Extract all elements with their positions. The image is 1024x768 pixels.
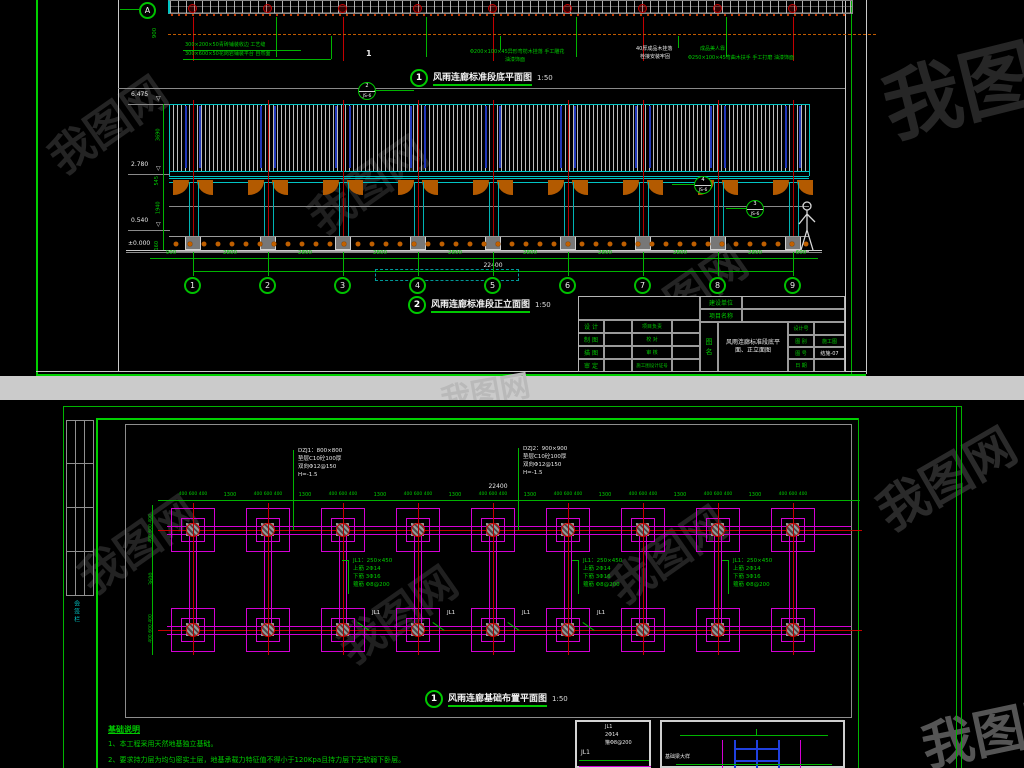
- tb-owner-label: 建设单位: [700, 296, 742, 309]
- tb-label: 制 图: [578, 333, 604, 346]
- grid-bubble: 5: [484, 277, 501, 294]
- tb-label: 审 定: [578, 359, 604, 372]
- cad-preview-screenshot: 我图网 我图网 我图网 我图网: [0, 0, 1024, 768]
- leader-line: [722, 560, 728, 561]
- rebar-line: [734, 748, 780, 750]
- frame-line: [63, 406, 64, 768]
- axis-line: [343, 17, 344, 61]
- grid-line: [268, 252, 269, 276]
- detail-text: JL1: [605, 725, 612, 731]
- leader-line: [572, 560, 578, 561]
- dim-line: [579, 760, 649, 761]
- grid-bubble-a: A: [139, 2, 156, 19]
- dim-label: 400 600 400: [627, 493, 659, 498]
- title-text: 风雨连廊标准段正立面图: [431, 297, 530, 313]
- frame-line: [851, 0, 852, 374]
- grid-bubble: 6: [559, 277, 576, 294]
- beam-note: 上筋 2Φ14: [353, 566, 381, 572]
- detail-text: 2Φ14: [605, 733, 618, 739]
- section-mark: 1: [366, 50, 372, 59]
- grid-line: [568, 252, 569, 276]
- leader-line: [500, 36, 501, 50]
- leader-line: [342, 560, 348, 561]
- tb-value: 结施-07: [814, 347, 845, 359]
- detail-tag: JL1: [581, 750, 590, 757]
- frame-line: [118, 88, 845, 89]
- axis-line: [718, 503, 719, 655]
- dim-label: 400 600 400: [402, 493, 434, 498]
- frame-line: [96, 418, 858, 420]
- beam-section-detail: JL1 2Φ14 箍Φ8@200 JL1: [575, 720, 651, 768]
- detail-text: 箍Φ8@200: [605, 741, 632, 747]
- leader-line: [726, 208, 746, 209]
- dim-line: [163, 104, 164, 250]
- leader-line: [728, 560, 729, 594]
- frame-line: [866, 0, 867, 374]
- level-value: 2.780: [131, 162, 148, 169]
- tb-label: 图 别: [788, 335, 814, 347]
- watermark: 我图网: [914, 675, 1024, 768]
- beam-note: JL1：250×450: [353, 558, 392, 564]
- beam-tag: JL1: [372, 610, 380, 616]
- grid-bubble: 1: [184, 277, 201, 294]
- dim-label: 900: [159, 250, 183, 256]
- column-marker: [488, 4, 497, 13]
- leader-line: [672, 184, 694, 185]
- tb-figname-label: 图 名: [700, 322, 718, 372]
- beam-note: 箍筋 Φ8@200: [733, 582, 770, 588]
- frame-line: [961, 406, 962, 768]
- frame-line: [956, 406, 957, 768]
- dim-label: 400 600 400: [327, 493, 359, 498]
- level-value: 6.475: [131, 92, 148, 99]
- axis-line: [268, 503, 269, 655]
- foundation-title: 1 风雨连廊基础布置平面图 1:50: [425, 690, 568, 708]
- watermark: 我图网: [862, 407, 1024, 544]
- leader-line: [348, 560, 349, 594]
- detail-label: 基础梁大样: [665, 755, 690, 761]
- beam-note: 下筋 3Φ16: [583, 574, 611, 580]
- dim-label: 1300: [443, 493, 467, 499]
- tb-label: 设计号: [788, 322, 814, 335]
- beam-tag: JL1: [447, 610, 455, 616]
- beam-note: 下筋 3Φ16: [353, 574, 381, 580]
- title-scale: 1:50: [537, 74, 553, 82]
- dim-line: [676, 764, 832, 765]
- dim-label: 400 600 400: [177, 493, 209, 498]
- column-marker: [563, 4, 572, 13]
- title-scale: 1:50: [552, 695, 568, 703]
- leader-line: [678, 36, 679, 48]
- tb-label: 设 计: [578, 320, 604, 333]
- grid-bubble: 2: [259, 277, 276, 294]
- leader-underline: [183, 59, 331, 60]
- sign-off-strip: [66, 420, 94, 596]
- plan-note: Φ250×100×45弯曲木扶手 手工打磨 油漆饰面: [688, 56, 794, 62]
- footing-note: DZJ2：900×900: [523, 446, 567, 452]
- beam-note: 箍筋 Φ8@200: [353, 582, 390, 588]
- axis-line: [343, 503, 344, 655]
- grid-line: [120, 9, 139, 10]
- detail-callout: 4JS-6: [694, 176, 712, 194]
- leader-line: [276, 17, 277, 57]
- grid-line: [643, 252, 644, 276]
- leader-line: [518, 448, 519, 530]
- frame-line: [118, 0, 119, 371]
- dim-label: 2800: [668, 250, 692, 256]
- footing-note: H=-1.5: [523, 470, 542, 476]
- notes-heading: 基础说明: [108, 726, 140, 735]
- grid-line: [193, 252, 194, 276]
- grid-bubble: 3: [334, 277, 351, 294]
- dim-label: 1300: [743, 493, 767, 499]
- column-marker: [338, 4, 347, 13]
- axis-line: [793, 503, 794, 655]
- tb-value: [814, 359, 845, 372]
- roof-edge: [809, 104, 810, 176]
- grid-bubble: 9: [784, 277, 801, 294]
- footing-note: 双向Φ12@150: [523, 462, 561, 468]
- tb-label: 校 对: [632, 333, 672, 346]
- watermark: 我图网: [870, 0, 1024, 159]
- dim-label: 2800: [218, 250, 242, 256]
- footing-note: 垫层C10砼100厚: [523, 454, 566, 460]
- grid-line: [343, 252, 344, 276]
- column-marker: [188, 4, 197, 13]
- person-figure: [795, 200, 821, 252]
- leader-line: [578, 560, 579, 594]
- tb-label: 审 核: [632, 346, 672, 359]
- tb-value: 施工图: [814, 335, 845, 347]
- beam-note: 上筋 2Φ14: [733, 566, 761, 572]
- dim-label: 545: [155, 176, 161, 186]
- dim-label: 1300: [368, 493, 392, 499]
- dim-label: 400 600 400: [477, 493, 509, 498]
- grid-bubble: 4: [409, 277, 426, 294]
- footing-note: 双向Φ12@150: [298, 464, 336, 470]
- footing-note: 垫层C10砼100厚: [298, 456, 341, 462]
- plan-note: 栓接安装牢固: [640, 55, 670, 61]
- frame-line: [36, 0, 38, 375]
- detail-callout: 2JS-6: [358, 82, 376, 100]
- plan-note: 成品美人靠: [700, 47, 725, 53]
- axis-line: [493, 503, 494, 655]
- leader-line: [331, 36, 332, 59]
- title-text: 风雨连廊基础布置平面图: [448, 691, 547, 707]
- grid-line: [793, 252, 794, 276]
- dim-label: 2800: [593, 250, 617, 256]
- leader-line: [426, 17, 427, 57]
- dim-label: 1300: [518, 493, 542, 499]
- title-number: 2: [408, 296, 426, 314]
- axis-line: [643, 503, 644, 655]
- level-value: 0.540: [131, 218, 148, 225]
- level-mark-icon: ▽: [156, 222, 161, 229]
- plan-title: 1 风雨连廊标准段底平面图 1:50: [410, 69, 553, 87]
- tb-project-label: 项目名称: [700, 309, 742, 322]
- centerline: [168, 34, 876, 35]
- axis-line: [568, 503, 569, 655]
- dim-label: 2800: [443, 250, 467, 256]
- rebar-line: [734, 760, 780, 762]
- roof-edge: [169, 104, 170, 176]
- tb-label: 图 号: [788, 347, 814, 359]
- column-marker: [713, 4, 722, 13]
- column-marker: [788, 4, 797, 13]
- title-text: 风雨连廊标准段底平面图: [433, 70, 532, 86]
- axis-line: [193, 503, 194, 655]
- eave-dot-band: [168, 12, 850, 18]
- dim-label: 1300: [668, 493, 692, 499]
- plan-note: 300×200×50青砖铺装收边 工艺缝: [185, 43, 265, 49]
- rebar-cage-detail: 基础梁大样: [660, 720, 845, 768]
- level-value: ±0.000: [128, 241, 150, 248]
- dim-label: 2800: [518, 250, 542, 256]
- beam-line: [169, 178, 809, 179]
- dim-label: 400 600 400: [552, 493, 584, 498]
- beam-tag: JL1: [597, 610, 605, 616]
- dim-label: 1940: [157, 201, 163, 214]
- sign-strip-label: 会签栏: [72, 600, 79, 624]
- frame-line: [96, 418, 98, 768]
- detail-callout: 3JS-6: [746, 200, 764, 218]
- frame-line: [845, 0, 846, 371]
- grid-line: [418, 252, 419, 276]
- beam-note: 下筋 3Φ16: [733, 574, 761, 580]
- tb-label: 项目负责: [632, 320, 672, 333]
- top-sheet: 我图网 我图网 我图网 我图网: [0, 0, 1024, 376]
- beam-note: JL1：250×450: [733, 558, 772, 564]
- beam-note: 箍筋 Φ8@200: [583, 582, 620, 588]
- notes-item: 1、本工程采用天然地基独立基础。: [108, 741, 217, 749]
- level-mark-icon: ▽: [156, 166, 161, 173]
- grid-bubble: 7: [634, 277, 651, 294]
- tb-label: 描 图: [578, 346, 604, 359]
- grid-line: [493, 252, 494, 276]
- grid-bubble: 8: [709, 277, 726, 294]
- dim-label: 400 600 400: [777, 493, 809, 498]
- plan-note: 40厚成品木挂落: [636, 47, 672, 53]
- dim-tick: [756, 729, 757, 735]
- leader-line: [726, 17, 727, 57]
- axis-line: [418, 503, 419, 655]
- plan-note: Φ200×100×45异形弯枋木挂落 手工雕花: [470, 50, 564, 56]
- eave-line: [169, 176, 809, 177]
- column-marker: [638, 4, 647, 13]
- footing-note: H=-1.5: [298, 472, 317, 478]
- bottom-sheet: 我图网 我图网 我图网 我图网 我图网 会签栏 22400 400 600 40…: [0, 400, 1024, 768]
- dim-label: 2800: [743, 250, 767, 256]
- dim-line: [680, 735, 828, 736]
- level-mark-icon: ▽: [156, 96, 161, 103]
- page-gap: 我图网: [0, 376, 1024, 400]
- dim-label: 1300: [593, 493, 617, 499]
- plan-note: 300×600×50花岗岩铺装平台 自然面: [185, 52, 270, 58]
- leader-line: [374, 90, 414, 91]
- dim-label: 2800: [368, 250, 392, 256]
- leader-line: [293, 450, 294, 530]
- dim-total: 22400: [478, 484, 518, 491]
- frame-line: [63, 406, 961, 407]
- title-number: 1: [425, 690, 443, 708]
- tb-label: 施工图设计证号: [632, 359, 672, 372]
- dim-chain: [158, 500, 860, 501]
- dim-label: 3690: [157, 128, 163, 141]
- grid-line: [718, 252, 719, 276]
- column-shaft: [189, 182, 199, 236]
- tb-figname: 风雨连廊标准段底平面、正立面图: [718, 322, 788, 372]
- frame-line: [858, 418, 859, 768]
- plan-note: 油漆饰面: [505, 58, 525, 64]
- footing-note: DZJ1：800×800: [298, 448, 342, 454]
- tb-value: [814, 322, 845, 335]
- dim-label: 400 600 400: [252, 493, 284, 498]
- dim-label: 1300: [293, 493, 317, 499]
- tb-label: 日 期: [788, 359, 814, 372]
- dim-label: 2800: [293, 250, 317, 256]
- title-scale: 1:50: [535, 301, 551, 309]
- dim-label: 400 600 400: [150, 508, 155, 548]
- beam-line: [579, 766, 651, 767]
- dim-label: 1300: [218, 493, 242, 499]
- column-marker: [413, 4, 422, 13]
- beam-note: JL1：250×450: [583, 558, 622, 564]
- elevation-title: 2 风雨连廊标准段正立面图 1:50: [408, 296, 551, 314]
- dim-label: 3600: [149, 565, 155, 593]
- notes-item: 2、要求持力层为均匀密实土层，地基承载力特征值不得小于120Kpa且持力层下无软…: [108, 757, 405, 765]
- dim-label: 900: [152, 28, 158, 39]
- beam-note: 上筋 2Φ14: [583, 566, 611, 572]
- leader-underline: [183, 50, 301, 51]
- dim-label: 400 600 400: [150, 608, 155, 648]
- roof-tile-hatch: [169, 104, 809, 172]
- column-marker: [263, 4, 272, 13]
- title-number: 1: [410, 69, 428, 87]
- dim-label: 400 600 400: [702, 493, 734, 498]
- leader-line: [576, 17, 577, 57]
- beam-tag: JL1: [522, 610, 530, 616]
